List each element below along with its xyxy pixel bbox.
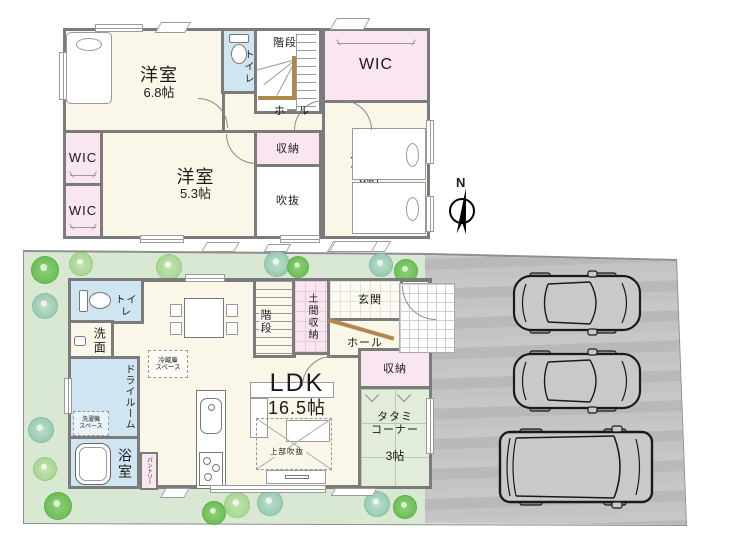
burner-icon (212, 464, 220, 472)
room-label: WIC (69, 204, 97, 219)
upper-void (256, 418, 332, 470)
eave-mark (330, 18, 371, 30)
bathroom: 浴室 (68, 436, 140, 489)
room-label: 玄関 (348, 294, 382, 307)
tree-icon (202, 501, 226, 525)
eave-mark (155, 22, 191, 33)
kitchen-sink-icon (200, 398, 222, 434)
dining-table-icon (184, 298, 224, 338)
wic-mid: WIC (63, 130, 103, 187)
wic-top: WIC (322, 28, 430, 103)
dining-chair-icon (226, 322, 238, 335)
tree-icon (287, 256, 309, 278)
bed-icon (66, 32, 112, 104)
room-label: WIC (359, 56, 393, 74)
room-label: パントリー (146, 457, 152, 485)
toilet-icon (89, 292, 111, 309)
bathtub-icon (75, 443, 111, 485)
dry-room: ドライルーム 洗濯機 スペース (68, 356, 140, 440)
tree-icon (69, 252, 93, 276)
eave-mark (329, 241, 378, 252)
window (140, 235, 184, 243)
door-arc (302, 356, 332, 386)
closet-1f: 収納 (358, 348, 432, 390)
car-icon (514, 349, 640, 413)
toilet-1f: トイレ (68, 278, 144, 324)
upper-void-label: 上部吹抜 (268, 448, 306, 457)
window (426, 398, 434, 454)
hanger-rod-icon (337, 43, 415, 44)
tree-icon (156, 254, 182, 280)
floorplan-1f: トイレ 洗面 ドライルーム 洗濯機 スペース 浴室 パントリー 階段 土間収納 (68, 278, 432, 489)
closet-2f: 収納 (254, 130, 322, 168)
toilet-icon (229, 34, 249, 43)
hanger-rod-icon (70, 175, 96, 176)
window (185, 274, 225, 282)
fridge-space-label: 冷蔵庫 スペース (155, 357, 180, 372)
washer-space-label: 洗濯機 スペース (79, 417, 102, 431)
stair-railing (258, 96, 296, 100)
entrance: 玄関 (327, 278, 403, 322)
void-2f: 吹抜 (254, 164, 322, 239)
toilet-2f: トイレ (221, 28, 257, 94)
tatami-corner: タタミ コーナー 3帖 (358, 386, 432, 489)
car-icon (514, 271, 640, 335)
room-area: 6.8帖 (113, 86, 174, 101)
toilet-icon (79, 290, 88, 312)
floorplan-2f: 洋室 6.8帖 洋室 5.3帖 洋室 6帖 トイレ 階段 (63, 28, 430, 239)
dining-chair-icon (226, 304, 238, 317)
room-label: トイレ (112, 295, 141, 318)
room-area: 16.5帖 (268, 398, 326, 419)
window (426, 196, 434, 232)
stairs-1f: 階段 (253, 278, 296, 358)
room-label: タタミ コーナー (371, 411, 419, 436)
doma-storage: 土間収納 (292, 278, 331, 355)
room-label: トイレ (242, 49, 253, 85)
hanger-rod-icon (70, 227, 96, 228)
tree-icon (32, 293, 58, 319)
pillow-icon (406, 197, 419, 221)
room-label: 洗面 (92, 327, 105, 355)
tv-icon (285, 475, 309, 479)
tv-board-icon (266, 470, 326, 484)
room-label: WIC (69, 151, 97, 166)
window (426, 120, 434, 164)
window (280, 235, 320, 243)
stove-icon (199, 452, 223, 486)
bathtub-inner (79, 447, 107, 481)
entrance-porch (399, 283, 455, 353)
room-label: 収納 (383, 363, 407, 376)
room-area: 5.3帖 (146, 187, 211, 202)
washroom: 洗面 (68, 320, 114, 360)
burner-icon (203, 457, 211, 465)
tree-icon (224, 492, 250, 518)
faucet-icon (208, 404, 215, 411)
van-icon (500, 426, 652, 508)
pillow-icon (76, 38, 102, 51)
stair-railing (292, 56, 296, 100)
window (210, 485, 326, 493)
window (59, 52, 67, 100)
hall-2f: ホール (227, 103, 357, 119)
door-arc (402, 286, 436, 320)
room-label: ドライルーム (123, 364, 134, 430)
room-label: 洋室 (143, 167, 215, 188)
tree-icon (257, 490, 283, 516)
window (64, 378, 72, 414)
dining-chair-icon (170, 322, 182, 335)
room-label: 階段 (273, 37, 297, 50)
pantry: パントリー (140, 452, 158, 490)
tree-icon (28, 417, 54, 443)
parked-cars (492, 262, 668, 510)
fridge-space: 冷蔵庫 スペース (148, 350, 188, 378)
eave-mark (264, 244, 292, 252)
window (95, 24, 143, 32)
stairs-2f: 階段 (254, 28, 322, 114)
tree-icon (369, 253, 393, 277)
pillow-icon (406, 143, 419, 167)
room-label: 土間収納 (306, 293, 317, 341)
room-label: 浴室 (117, 448, 132, 480)
eave-mark (331, 488, 378, 496)
tree-icon (33, 457, 57, 481)
room-label: 収納 (276, 143, 300, 156)
stair-treads (296, 34, 316, 112)
room-label: 吹抜 (276, 195, 300, 208)
room-area: 3帖 (386, 450, 405, 464)
sink-icon (74, 336, 86, 346)
tree-icon (44, 492, 72, 520)
bed-icon (352, 128, 426, 180)
floor-plan-canvas: 洋室 6.8帖 洋室 5.3帖 洋室 6帖 トイレ 階段 (0, 0, 733, 545)
tree-icon (264, 251, 290, 277)
tree-icon (393, 495, 417, 519)
eave-mark (201, 242, 240, 252)
dining-chair-icon (170, 304, 182, 317)
tree-icon (31, 256, 59, 284)
room-label: 階段 (259, 309, 271, 335)
compass-north-label: N (456, 176, 466, 191)
wic-low: WIC (63, 183, 103, 239)
burner-icon (204, 473, 212, 481)
ldk-label: LDK 16.5帖 (230, 368, 364, 420)
washer-space: 洗濯機 スペース (73, 411, 109, 436)
compass: N (443, 176, 487, 240)
room-label: 洋室 (110, 65, 178, 86)
bed-icon (352, 182, 426, 234)
